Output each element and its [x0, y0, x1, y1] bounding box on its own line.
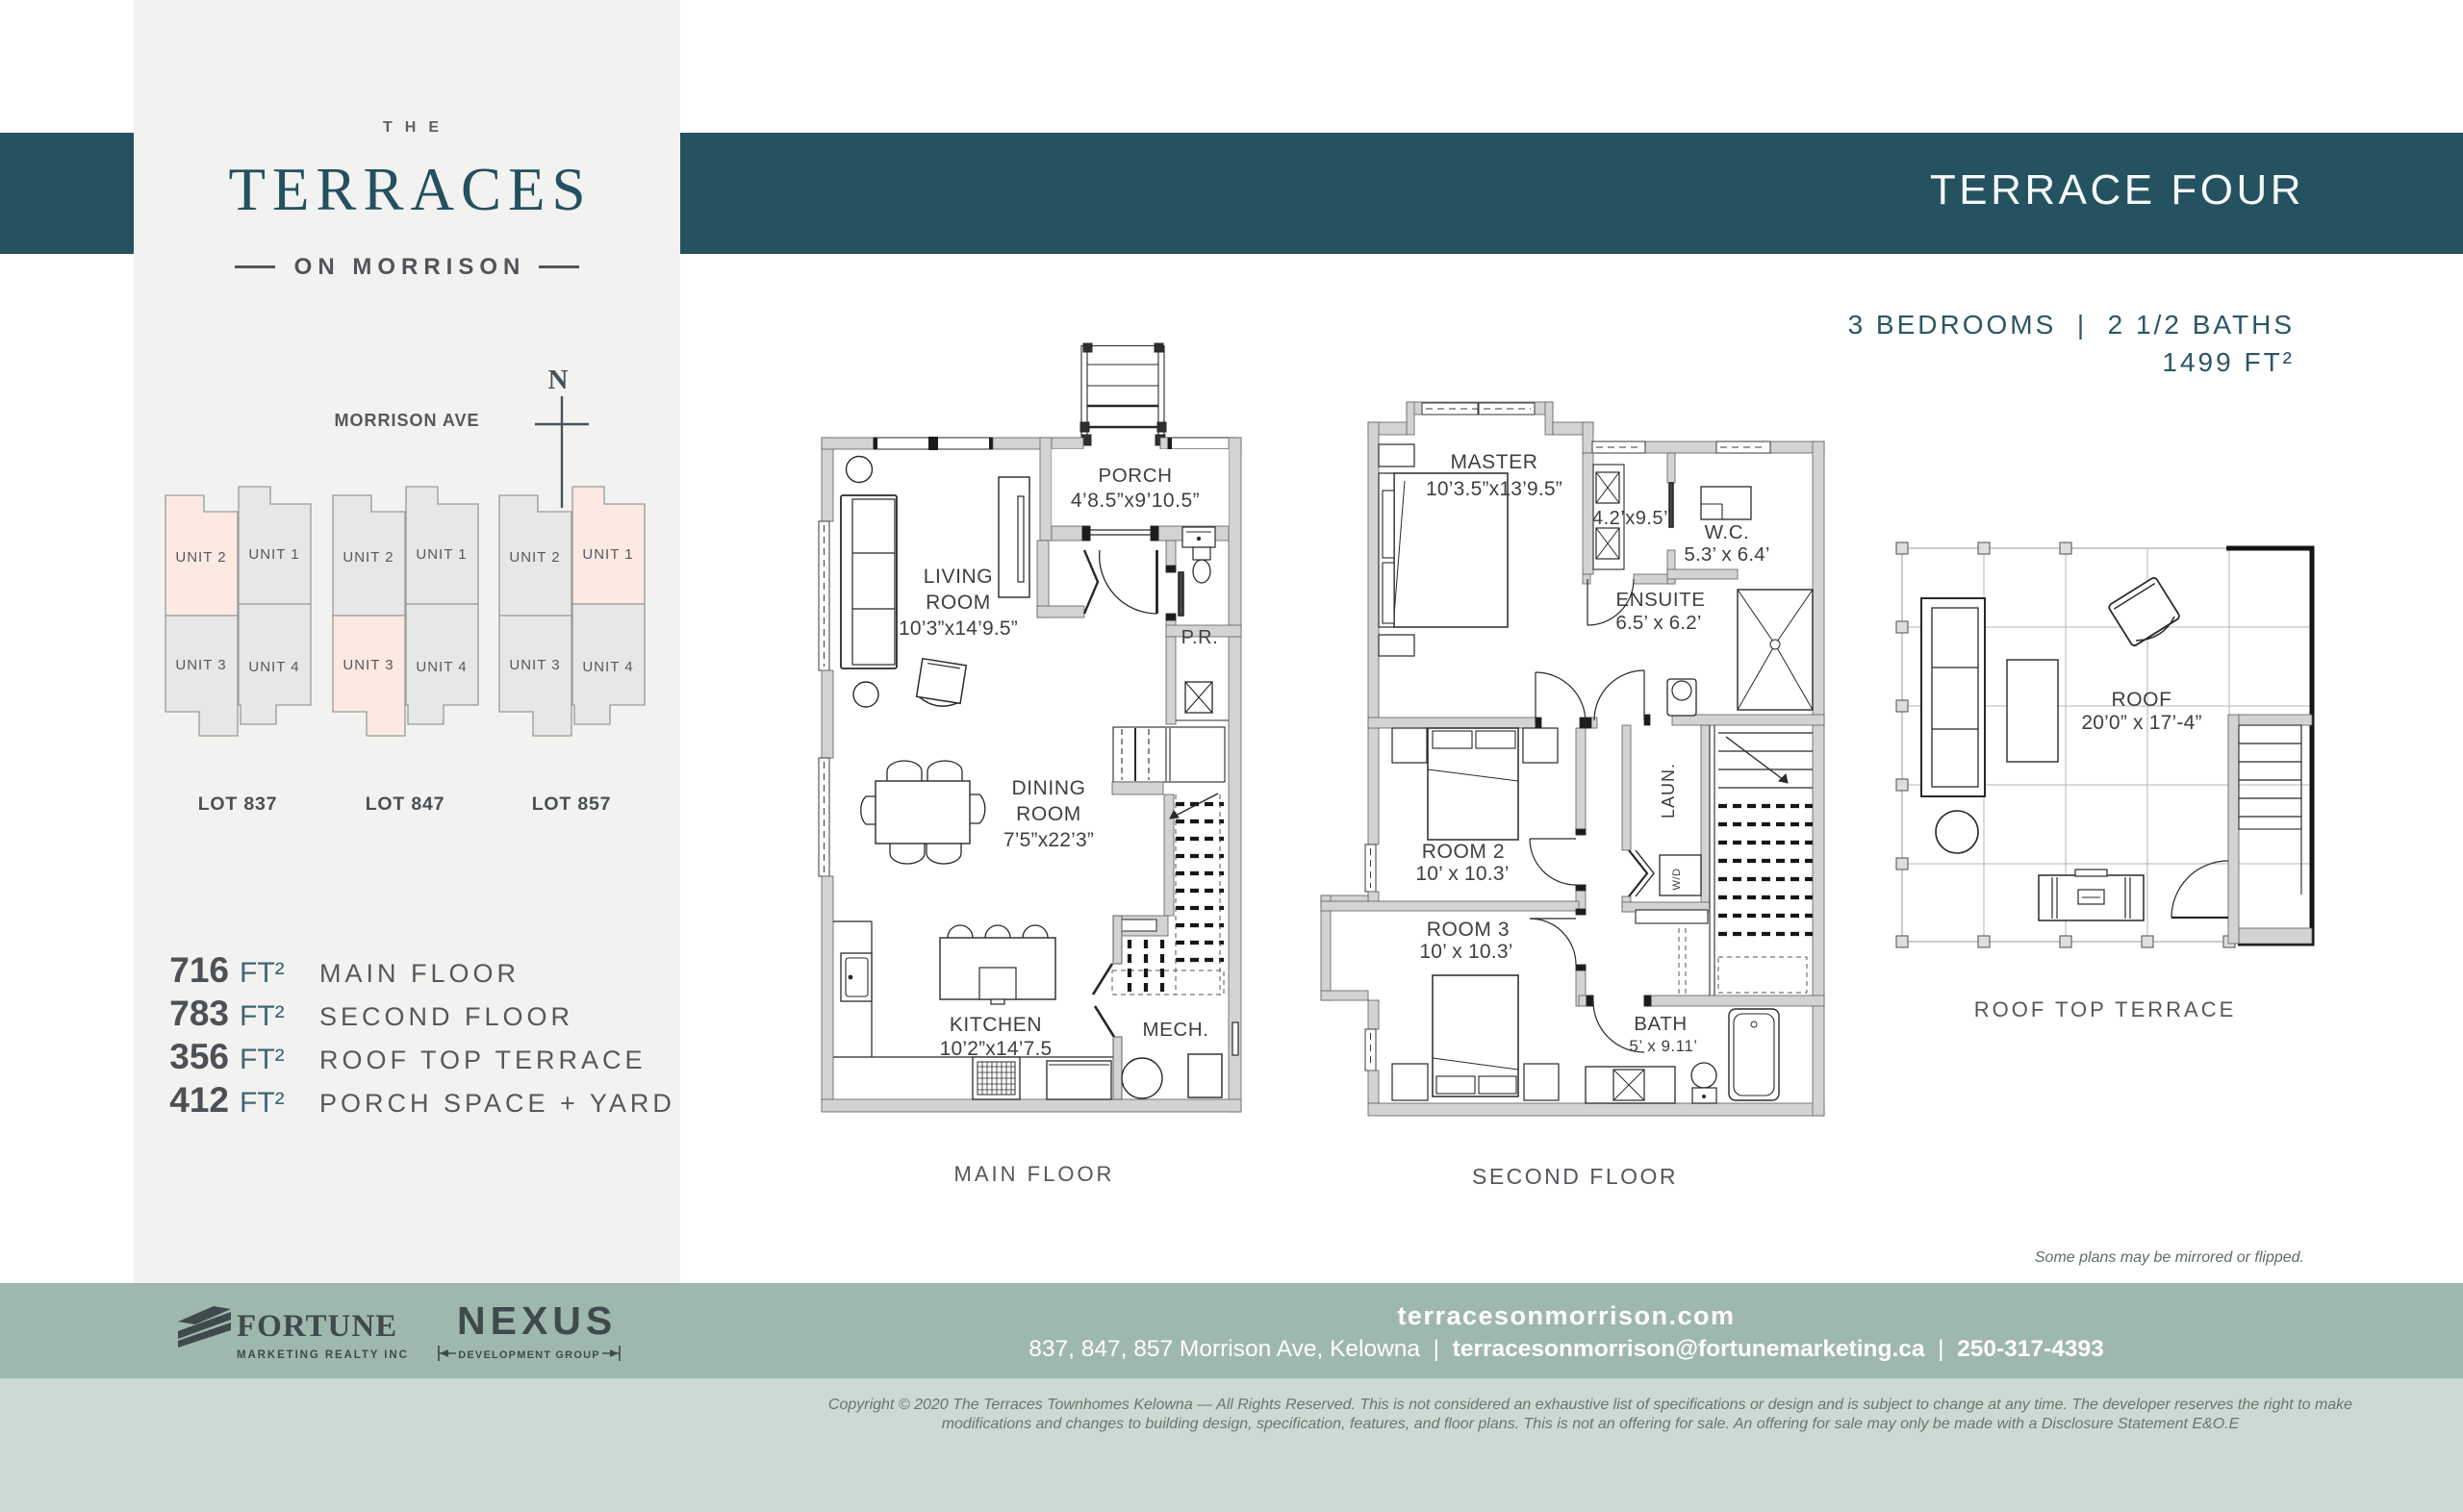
- svg-text:W/D: W/D: [1671, 869, 1683, 891]
- svg-text:NEXUS: NEXUS: [457, 1298, 617, 1343]
- svg-text:DINING: DINING: [1011, 777, 1085, 799]
- svg-text:ROOF: ROOF: [2111, 689, 2171, 711]
- svg-text:W.C.: W.C.: [1705, 521, 1750, 543]
- svg-text:ROOM: ROOM: [1016, 803, 1081, 825]
- svg-text:ROOF TOP TERRACE: ROOF TOP TERRACE: [1974, 997, 2237, 1021]
- svg-text:KITCHEN: KITCHEN: [950, 1014, 1042, 1036]
- svg-text:N: N: [548, 365, 569, 395]
- svg-text:MARKETING REALTY INC: MARKETING REALTY INC: [237, 1349, 409, 1361]
- svg-text:7’5”x22’3”: 7’5”x22’3”: [1003, 829, 1094, 851]
- svg-text:UNIT 3: UNIT 3: [175, 657, 226, 673]
- svg-text:5.3’ x 6.4’: 5.3’ x 6.4’: [1684, 543, 1769, 566]
- svg-text:UNIT 2: UNIT 2: [343, 549, 394, 566]
- svg-text:10’ x 10.3’: 10’ x 10.3’: [1415, 863, 1509, 885]
- svg-text:ROOM 3: ROOM 3: [1427, 919, 1510, 941]
- svg-text:LOT 837: LOT 837: [198, 794, 278, 815]
- svg-text:ROOM: ROOM: [926, 592, 991, 614]
- svg-text:UNIT 1: UNIT 1: [416, 546, 467, 563]
- svg-text:LIVING: LIVING: [924, 566, 993, 588]
- svg-text:UNIT 2: UNIT 2: [509, 549, 560, 566]
- svg-text:10’3”x14’9.5”: 10’3”x14’9.5”: [899, 617, 1018, 640]
- svg-text:P.R.: P.R.: [1181, 627, 1219, 648]
- svg-text:MAIN FLOOR: MAIN FLOOR: [954, 1162, 1115, 1186]
- svg-text:UNIT 3: UNIT 3: [343, 657, 394, 673]
- svg-text:MECH.: MECH.: [1142, 1019, 1208, 1041]
- svg-text:FORTUNE: FORTUNE: [237, 1309, 397, 1344]
- svg-text:UNIT 1: UNIT 1: [582, 546, 633, 563]
- svg-text:LOT 847: LOT 847: [366, 794, 445, 815]
- svg-text:MASTER: MASTER: [1450, 451, 1537, 473]
- svg-text:DEVELOPMENT GROUP: DEVELOPMENT GROUP: [458, 1349, 600, 1361]
- svg-text:4.2’x9.5’: 4.2’x9.5’: [1592, 508, 1668, 529]
- svg-text:10’3.5”x13’9.5”: 10’3.5”x13’9.5”: [1426, 478, 1562, 500]
- svg-text:5’ x 9.11’: 5’ x 9.11’: [1629, 1037, 1697, 1055]
- svg-text:UNIT 1: UNIT 1: [248, 546, 299, 563]
- svg-text:10’ x 10.3’: 10’ x 10.3’: [1419, 941, 1512, 963]
- svg-text:UNIT 4: UNIT 4: [248, 659, 299, 675]
- svg-text:UNIT 2: UNIT 2: [175, 549, 226, 566]
- svg-text:SECOND FLOOR: SECOND FLOOR: [1472, 1164, 1678, 1189]
- svg-text:UNIT 3: UNIT 3: [509, 657, 560, 673]
- svg-text:LOT 857: LOT 857: [532, 794, 612, 815]
- svg-text:6.5’ x 6.2’: 6.5’ x 6.2’: [1615, 612, 1701, 634]
- svg-text:LAUN.: LAUN.: [1659, 763, 1678, 819]
- svg-text:20’0” x 17’-4”: 20’0” x 17’-4”: [2081, 712, 2201, 734]
- svg-text:UNIT 4: UNIT 4: [416, 659, 467, 675]
- svg-text:4’8.5”x9’10.5”: 4’8.5”x9’10.5”: [1071, 490, 1200, 512]
- svg-text:UNIT 4: UNIT 4: [582, 659, 633, 675]
- svg-text:BATH: BATH: [1634, 1013, 1688, 1035]
- svg-text:10’2”x14’7.5: 10’2”x14’7.5: [940, 1038, 1053, 1060]
- svg-text:ROOM 2: ROOM 2: [1422, 841, 1505, 863]
- svg-text:PORCH: PORCH: [1098, 465, 1172, 487]
